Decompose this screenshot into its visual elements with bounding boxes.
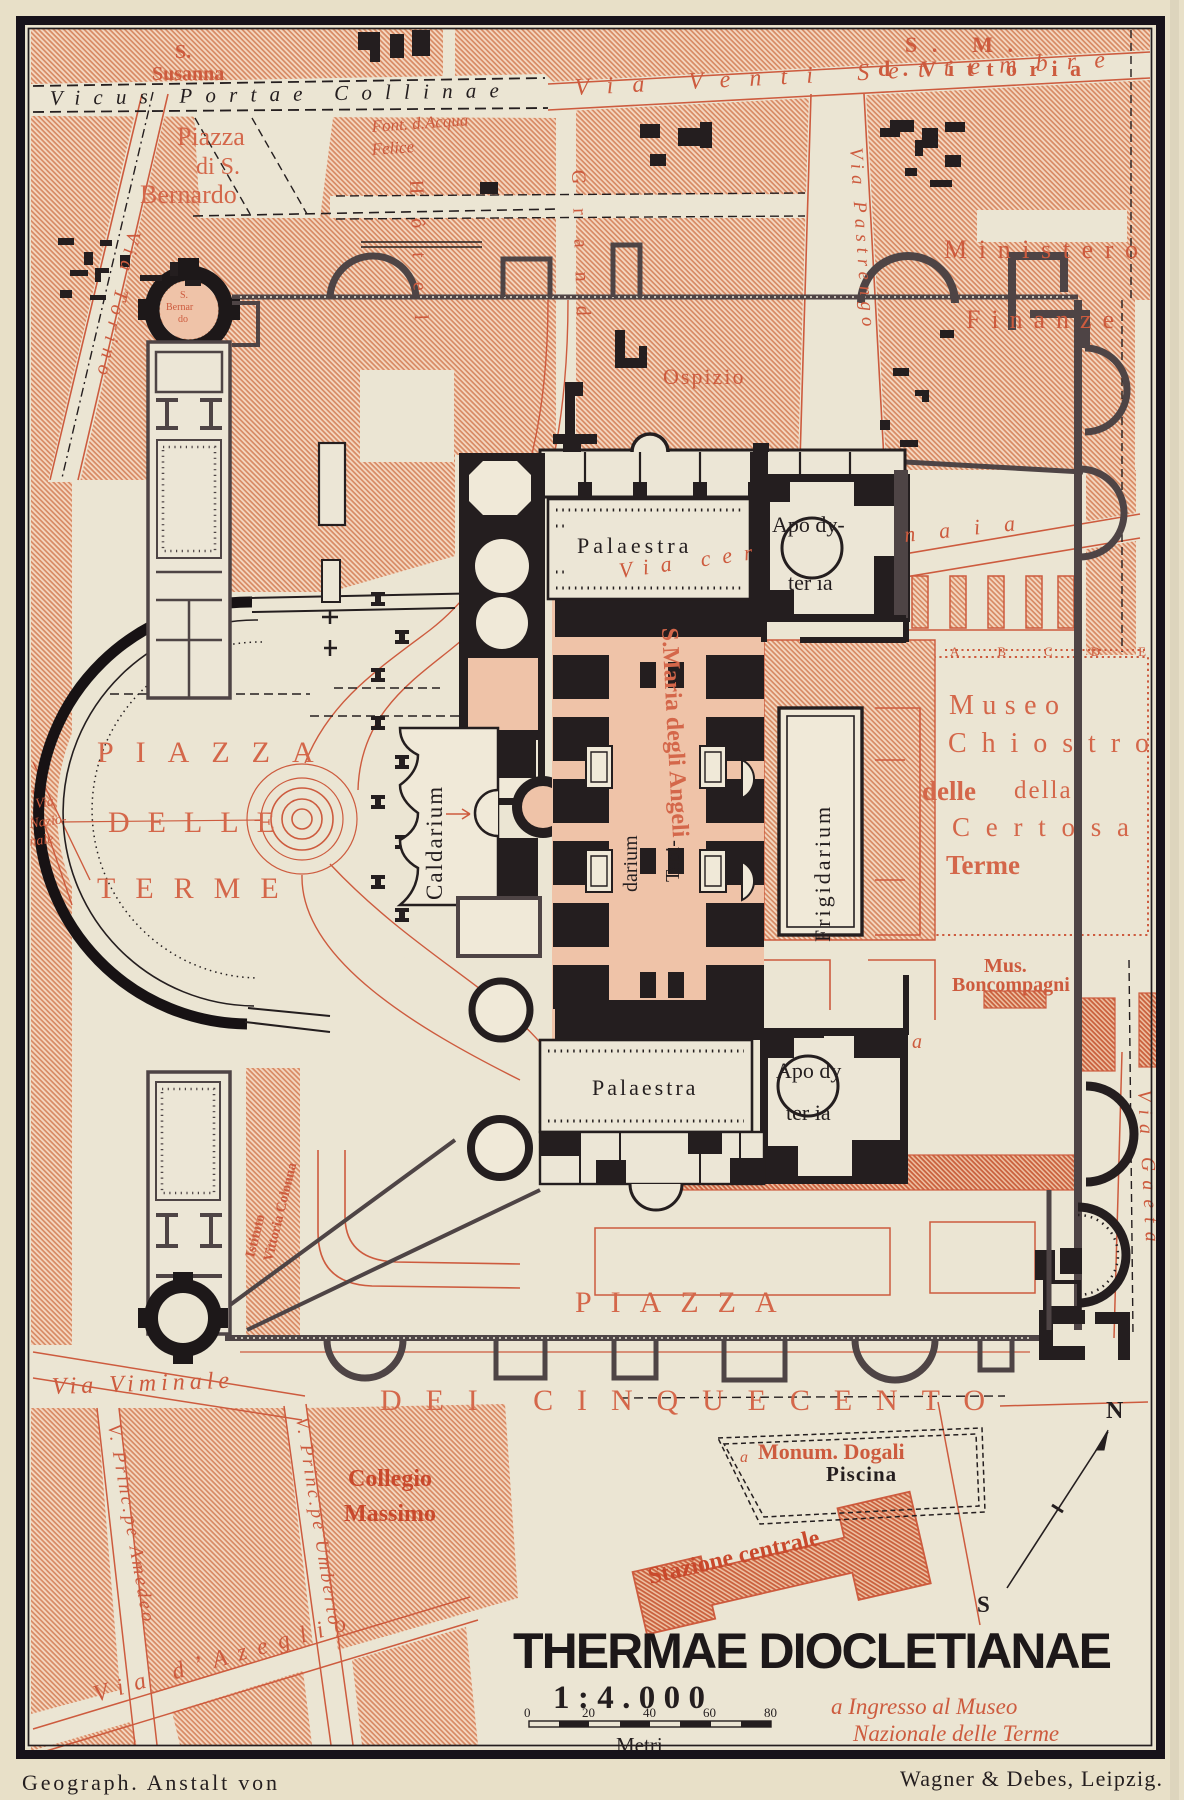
- svg-text:Tepi-: Tepi-: [662, 840, 684, 882]
- svg-text:Bernardo: Bernardo: [140, 180, 237, 209]
- svg-text:DEI CINQUECENTO: DEI CINQUECENTO: [380, 1384, 1002, 1417]
- svg-text:60: 60: [703, 1705, 716, 1720]
- svg-text:Felice: Felice: [370, 137, 415, 159]
- svg-text:ABCDE: ABCDE: [950, 644, 1184, 659]
- svg-text:di S.: di S.: [196, 154, 240, 180]
- svg-text:Palaestra: Palaestra: [577, 533, 692, 558]
- svg-text:delle: delle: [922, 776, 976, 806]
- svg-text:DELLE: DELLE: [108, 806, 293, 839]
- svg-text:Caldarium: Caldarium: [422, 785, 447, 900]
- svg-text:TERME: TERME: [97, 872, 299, 905]
- svg-text:ter ia: ter ia: [788, 570, 833, 595]
- svg-text:a Ingresso al Museo: a Ingresso al Museo: [831, 1694, 1017, 1719]
- svg-text:PIAZZA: PIAZZA: [97, 736, 336, 769]
- svg-text:S.: S.: [175, 41, 191, 63]
- svg-text:N: N: [1106, 1398, 1124, 1424]
- svg-text:Piscina: Piscina: [826, 1462, 897, 1486]
- svg-text:Ospizio: Ospizio: [663, 364, 745, 389]
- svg-text:darium: darium: [620, 835, 642, 892]
- svg-text:Boncompagni: Boncompagni: [952, 974, 1070, 996]
- svg-text:Wagner & Debes, Leipzig.: Wagner & Debes, Leipzig.: [900, 1766, 1162, 1791]
- svg-text:Palaestra: Palaestra: [592, 1075, 698, 1100]
- svg-text:Via: Via: [34, 795, 54, 812]
- svg-text:Collegio: Collegio: [348, 1466, 432, 1492]
- svg-text:Piazza: Piazza: [177, 122, 245, 151]
- svg-text:0: 0: [524, 1705, 531, 1720]
- svg-text:40: 40: [643, 1705, 656, 1720]
- svg-text:S.: S.: [180, 290, 188, 301]
- svg-text:S: S: [977, 1592, 990, 1617]
- svg-text:Frigidarium: Frigidarium: [810, 804, 835, 942]
- svg-text:della: della: [1014, 777, 1073, 804]
- svg-text:a: a: [912, 1031, 922, 1053]
- svg-text:Monum. Dogali: Monum. Dogali: [758, 1439, 905, 1464]
- svg-text:Apo dy: Apo dy: [776, 1058, 841, 1083]
- svg-text:Terme: Terme: [946, 850, 1020, 880]
- svg-text:do: do: [178, 314, 188, 325]
- svg-text:a: a: [740, 1449, 748, 1466]
- svg-text:Bernar: Bernar: [166, 302, 194, 313]
- svg-text:Apo dy-: Apo dy-: [772, 512, 845, 537]
- svg-text:THERMAE DIOCLETIANAE: THERMAE DIOCLETIANAE: [513, 1623, 1112, 1679]
- svg-text:Massimo: Massimo: [344, 1501, 436, 1527]
- svg-text:Susanna: Susanna: [152, 63, 224, 85]
- svg-text:ter ia: ter ia: [786, 1100, 831, 1125]
- svg-text:Nazionale delle Terme: Nazionale delle Terme: [852, 1721, 1059, 1746]
- svg-text:Geograph. Anstalt von: Geograph. Anstalt von: [22, 1770, 277, 1795]
- svg-text:80: 80: [764, 1705, 777, 1720]
- svg-text:20: 20: [582, 1705, 595, 1720]
- svg-text:PIAZZA: PIAZZA: [575, 1286, 796, 1319]
